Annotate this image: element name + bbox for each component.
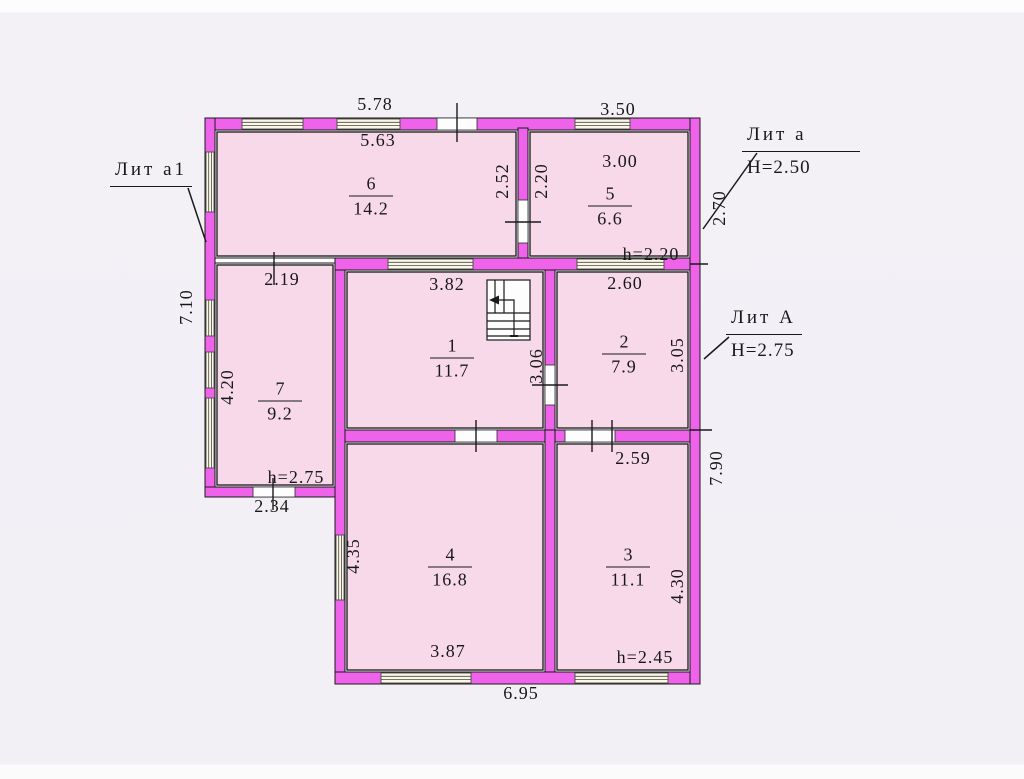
window — [388, 259, 473, 269]
room-area: 16.8 — [428, 571, 472, 589]
window — [242, 119, 303, 129]
room-number: 6 — [349, 175, 393, 193]
building-height: Н=2.75 — [726, 335, 802, 360]
fraction-bar — [602, 354, 646, 355]
room-5-label: 5 6.6 — [588, 185, 632, 228]
room-number: 3 — [606, 546, 650, 564]
room-number: 2 — [602, 333, 646, 351]
building-name: Лит а1 — [110, 160, 192, 186]
room-area: 11.1 — [606, 571, 650, 589]
dim-room1-height: 3.06 — [527, 348, 545, 384]
window — [575, 119, 630, 129]
room-3-label: 3 11.1 — [606, 546, 650, 589]
fraction-bar — [349, 196, 393, 197]
room-6-label: 6 14.2 — [349, 175, 393, 218]
window — [206, 152, 214, 212]
dim-room5-height: 2.20 — [532, 163, 550, 199]
wall-rooms-1-4 — [345, 430, 545, 442]
building-name: Лит А — [726, 308, 802, 334]
building-label-lit-A: Лит А Н=2.75 — [726, 308, 802, 360]
building-label-lit-a1: Лит а1 — [110, 160, 192, 187]
room-1-label: 1 11.7 — [430, 337, 474, 380]
dim-room5-width: 3.00 — [602, 152, 638, 170]
fraction-bar — [588, 206, 632, 207]
dim-room7-door: 2.34 — [254, 497, 290, 515]
building-label-lit-a: Лит а Н=2.50 — [742, 125, 860, 177]
wall-right — [690, 118, 700, 684]
room-area: 7.9 — [602, 358, 646, 376]
dim-room7-width: 2.19 — [264, 270, 300, 288]
partition-rooms-6-7 — [215, 258, 335, 263]
dim-room4-height: 4.35 — [344, 538, 362, 574]
room-number: 7 — [258, 380, 302, 398]
ceiling-height-room7: h=2.75 — [268, 468, 325, 486]
dim-room3-top: 2.59 — [615, 449, 651, 467]
ceiling-height-room5: h=2.20 — [623, 245, 680, 263]
building-height: Н=2.50 — [742, 152, 860, 177]
dim-room2-height: 3.05 — [668, 337, 686, 373]
dim-top-right-outer: 3.50 — [600, 100, 636, 118]
dim-room7-height: 4.20 — [218, 369, 236, 405]
dim-main-right: 7.90 — [707, 450, 725, 486]
dim-room6-width: 5.63 — [360, 131, 396, 149]
dim-bottom-outer: 6.95 — [503, 684, 539, 702]
wall-rooms-1-2 — [545, 270, 555, 442]
floor-plan-drawing — [0, 0, 1024, 779]
window — [206, 300, 214, 336]
room-number: 4 — [428, 546, 472, 564]
building-name: Лит а — [742, 125, 860, 151]
fraction-bar — [606, 567, 650, 568]
window — [575, 673, 668, 683]
fraction-bar — [428, 567, 472, 568]
room-7-label: 7 9.2 — [258, 380, 302, 423]
window — [337, 119, 400, 129]
dim-room4-width: 3.87 — [430, 642, 466, 660]
room-4-label: 4 16.8 — [428, 546, 472, 589]
fraction-bar — [258, 401, 302, 402]
room-area: 9.2 — [258, 405, 302, 423]
window — [206, 352, 214, 388]
floor-plan-page: 5.78 3.50 5.63 3.00 2.19 3.82 2.60 2.59 … — [0, 0, 1024, 779]
label-underline — [110, 186, 192, 187]
room-area: 11.7 — [430, 362, 474, 380]
room-area: 6.6 — [588, 210, 632, 228]
window — [381, 673, 471, 683]
ceiling-height-room3: h=2.45 — [617, 648, 674, 666]
dim-room2-width: 2.60 — [607, 274, 643, 292]
fraction-bar — [430, 358, 474, 359]
room-2-label: 2 7.9 — [602, 333, 646, 376]
room-area: 14.2 — [349, 200, 393, 218]
dim-top-left-outer: 5.78 — [357, 95, 393, 113]
dim-room3-height: 4.30 — [668, 568, 686, 604]
leader-lit-a1 — [188, 188, 206, 242]
dim-annex-a-right: 2.70 — [710, 190, 728, 226]
stairs-icon — [487, 280, 530, 340]
dim-left-outer: 7.10 — [177, 289, 195, 325]
dim-room6-height: 2.52 — [493, 163, 511, 199]
door-opening — [565, 430, 615, 442]
wall-main-west — [335, 258, 345, 684]
wall-rooms-4-3 — [545, 430, 555, 672]
dim-room1-width: 3.82 — [429, 275, 465, 293]
room-number: 1 — [430, 337, 474, 355]
room-number: 5 — [588, 185, 632, 203]
window — [206, 398, 214, 468]
